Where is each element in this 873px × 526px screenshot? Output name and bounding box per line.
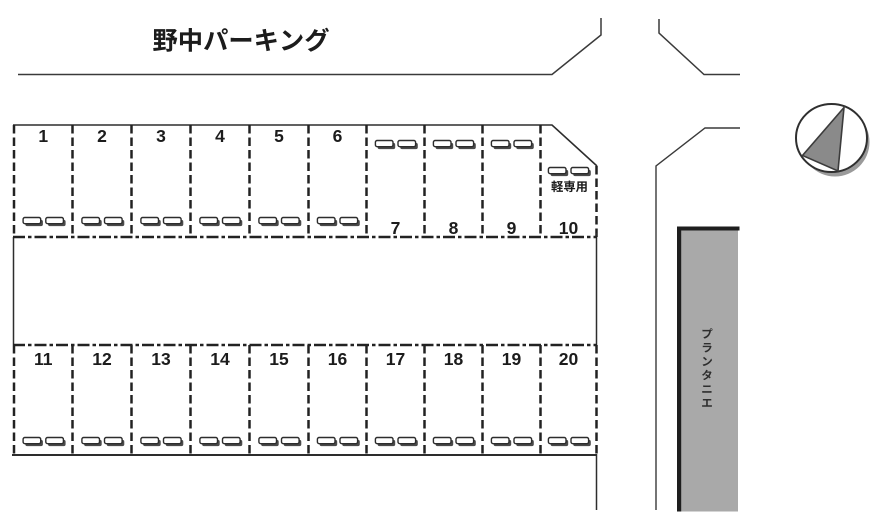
svg-text:17: 17 xyxy=(386,349,405,369)
svg-text:7: 7 xyxy=(391,218,401,238)
svg-text:1: 1 xyxy=(38,126,48,146)
svg-text:9: 9 xyxy=(507,218,517,238)
svg-text:6: 6 xyxy=(333,126,343,146)
svg-text:12: 12 xyxy=(92,349,112,369)
svg-text:8: 8 xyxy=(449,218,459,238)
svg-text:3: 3 xyxy=(156,126,166,146)
svg-text:14: 14 xyxy=(210,349,230,369)
svg-text:19: 19 xyxy=(502,349,522,369)
svg-text:13: 13 xyxy=(151,349,171,369)
svg-text:15: 15 xyxy=(269,349,289,369)
svg-text:4: 4 xyxy=(215,126,225,146)
svg-text:11: 11 xyxy=(34,349,53,369)
svg-text:10: 10 xyxy=(559,218,579,238)
svg-text:20: 20 xyxy=(559,349,579,369)
svg-text:18: 18 xyxy=(444,349,464,369)
svg-text:2: 2 xyxy=(97,126,107,146)
svg-text:5: 5 xyxy=(274,126,284,146)
svg-text:16: 16 xyxy=(328,349,348,369)
